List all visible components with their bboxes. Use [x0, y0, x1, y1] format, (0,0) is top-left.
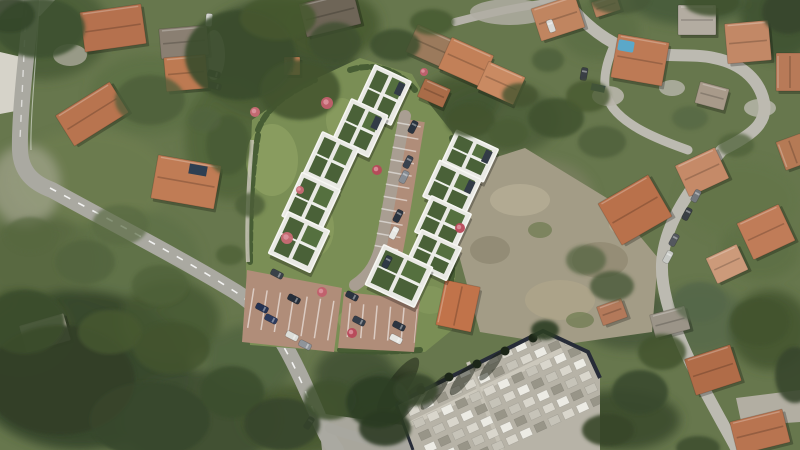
tree-canopy: [578, 126, 626, 158]
tree-canopy: [532, 48, 564, 72]
blossom-highlight: [349, 330, 354, 335]
cypress-tree: [445, 373, 454, 382]
house: [724, 20, 774, 67]
tree-canopy: [359, 410, 411, 446]
blossom-highlight: [319, 289, 324, 294]
tree-canopy: [132, 265, 188, 305]
tree-canopy: [718, 133, 754, 157]
blossom-highlight: [297, 187, 301, 191]
blossom-highlight: [457, 225, 462, 230]
tree-canopy: [216, 245, 244, 265]
tree-canopy: [612, 370, 668, 414]
tree-canopy: [78, 310, 142, 354]
blossom-highlight: [283, 234, 288, 239]
tree-canopy: [5, 217, 55, 253]
dirt-spot: [566, 312, 594, 328]
dirt-spot: [470, 236, 510, 264]
blossom-highlight: [421, 69, 425, 73]
tree-canopy: [674, 282, 726, 322]
tree-canopy: [445, 103, 495, 137]
blossom-highlight: [374, 167, 379, 172]
cypress-tree: [501, 347, 510, 356]
tree-canopy: [260, 60, 340, 120]
house-roof: [776, 53, 800, 91]
cypress-tree: [473, 360, 482, 369]
tree-canopy: [502, 83, 538, 107]
blossom-highlight: [252, 109, 257, 114]
tree-canopy: [134, 322, 210, 374]
tree-canopy: [394, 374, 438, 406]
dirt-spot: [528, 222, 552, 238]
dirt-spot: [490, 184, 550, 216]
tree-canopy: [672, 106, 708, 130]
tree-canopy: [590, 271, 634, 301]
tree-canopy: [582, 414, 634, 446]
house: [80, 4, 150, 56]
tree-canopy: [488, 119, 528, 147]
tree-canopy: [566, 80, 610, 112]
car-windshield: [582, 71, 587, 72]
tree-canopy: [730, 298, 790, 346]
tree-canopy: [55, 240, 115, 284]
tree-canopy: [235, 193, 265, 217]
tree-canopy: [410, 9, 454, 35]
aerial-view: [0, 0, 800, 450]
tree-canopy: [638, 334, 686, 370]
blossom-highlight: [323, 99, 328, 104]
tree-canopy: [370, 29, 420, 61]
tree-canopy: [115, 75, 185, 125]
house: [776, 53, 800, 94]
driveway: [744, 99, 776, 117]
tree-canopy: [189, 108, 221, 132]
tree-canopy: [566, 245, 606, 275]
aerial-photo-canvas: [0, 0, 800, 450]
tree-canopy: [92, 205, 148, 245]
tree-canopy: [309, 22, 361, 62]
tree-canopy: [531, 320, 559, 340]
